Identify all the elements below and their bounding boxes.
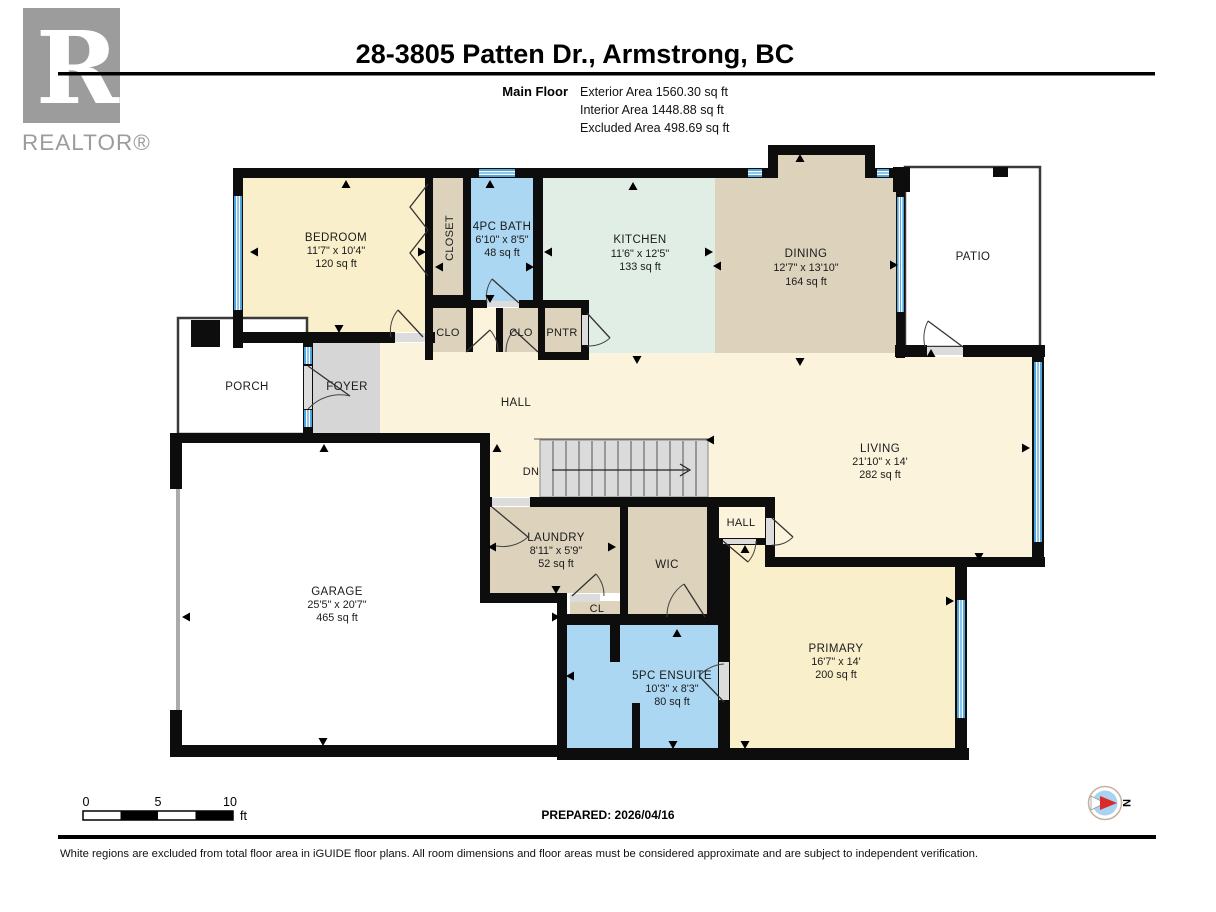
scale-unit: ft: [240, 809, 247, 823]
svg-text:465 sq ft: 465 sq ft: [316, 612, 357, 624]
clo2-label: CLO: [509, 327, 533, 339]
stairs: [534, 439, 714, 497]
interior-area: Interior Area 1448.88 sq ft: [580, 103, 724, 117]
floorplan-canvas: R REALTOR® 28-3805 Patten Dr., Armstrong…: [0, 0, 1216, 912]
patio-label: PATIO: [956, 251, 991, 263]
hall2-label: HALL: [727, 517, 756, 529]
wic-label: WIC: [655, 559, 679, 571]
clo1-label: CLO: [436, 327, 460, 339]
svg-text:GARAGE: GARAGE: [311, 586, 363, 598]
svg-text:282 sq ft: 282 sq ft: [859, 469, 900, 481]
floor-label: Main Floor: [502, 84, 568, 99]
cl-label: CL: [590, 603, 605, 615]
prepared-date: PREPARED: 2026/04/16: [541, 808, 675, 822]
floor-summary: Main Floor Exterior Area 1560.30 sq ft I…: [502, 84, 730, 135]
svg-text:KITCHEN: KITCHEN: [613, 234, 666, 246]
compass-north-label: N: [1120, 799, 1132, 807]
svg-text:DINING: DINING: [785, 248, 828, 260]
svg-text:164 sq ft: 164 sq ft: [785, 276, 826, 288]
kitchen-label: KITCHEN 11'6" x 12'5" 133 sq ft: [611, 234, 670, 273]
pntr-label: PNTR: [546, 327, 577, 339]
scale-bar: 0 5 10 ft: [83, 795, 248, 823]
svg-text:LAUNDRY: LAUNDRY: [527, 532, 585, 544]
svg-text:5PC ENSUITE: 5PC ENSUITE: [632, 670, 712, 682]
svg-text:LIVING: LIVING: [860, 443, 900, 455]
svg-text:80 sq ft: 80 sq ft: [654, 696, 689, 708]
svg-text:PRIMARY: PRIMARY: [809, 643, 864, 655]
svg-text:21'10" x 14': 21'10" x 14': [852, 456, 907, 468]
svg-text:4PC BATH: 4PC BATH: [473, 221, 532, 233]
svg-text:16'7" x 14': 16'7" x 14': [811, 656, 860, 668]
svg-text:48 sq ft: 48 sq ft: [484, 247, 519, 259]
svg-text:6'10" x 8'5": 6'10" x 8'5": [475, 234, 528, 246]
disclaimer-text: White regions are excluded from total fl…: [60, 848, 978, 860]
svg-text:11'6" x 12'5": 11'6" x 12'5": [611, 248, 670, 260]
svg-text:11'7" x 10'4": 11'7" x 10'4": [307, 245, 366, 257]
realtor-logo-text: REALTOR®: [22, 130, 151, 155]
compass-icon: N: [1089, 787, 1133, 820]
excluded-area: Excluded Area 498.69 sq ft: [580, 121, 730, 135]
svg-text:12'7" x 13'10": 12'7" x 13'10": [773, 262, 838, 274]
porch-label: PORCH: [225, 381, 269, 393]
floorplan-page: R REALTOR® 28-3805 Patten Dr., Armstrong…: [0, 0, 1216, 912]
svg-text:8'11" x 5'9": 8'11" x 5'9": [530, 545, 583, 557]
svg-text:BEDROOM: BEDROOM: [305, 232, 367, 244]
header-rule: [58, 72, 1155, 76]
exterior-area: Exterior Area 1560.30 sq ft: [580, 85, 729, 99]
living-label: LIVING 21'10" x 14' 282 sq ft: [852, 443, 907, 481]
garage-label: GARAGE 25'5" x 20'7" 465 sq ft: [307, 586, 366, 624]
svg-text:200 sq ft: 200 sq ft: [815, 669, 856, 681]
footer-rule: [58, 835, 1156, 839]
svg-text:25'5" x 20'7": 25'5" x 20'7": [307, 599, 366, 611]
page-title: 28-3805 Patten Dr., Armstrong, BC: [356, 39, 795, 69]
realtor-logo-r: R: [36, 9, 120, 127]
scale-tick-5: 5: [155, 795, 162, 809]
svg-text:52 sq ft: 52 sq ft: [538, 558, 573, 570]
scale-tick-0: 0: [83, 795, 90, 809]
foyer-label: FOYER: [326, 381, 368, 393]
primary-label: PRIMARY 16'7" x 14' 200 sq ft: [809, 643, 864, 681]
stairs-dn-label: DN: [523, 466, 540, 478]
closet-label: CLOSET: [444, 215, 456, 261]
realtor-logo: R REALTOR®: [22, 8, 151, 155]
scale-tick-10: 10: [223, 795, 237, 809]
svg-text:133 sq ft: 133 sq ft: [619, 261, 660, 273]
garage-door: [176, 489, 180, 710]
svg-text:120 sq ft: 120 sq ft: [315, 258, 356, 270]
hall-label: HALL: [501, 397, 532, 409]
svg-text:10'3" x 8'3": 10'3" x 8'3": [645, 683, 698, 695]
